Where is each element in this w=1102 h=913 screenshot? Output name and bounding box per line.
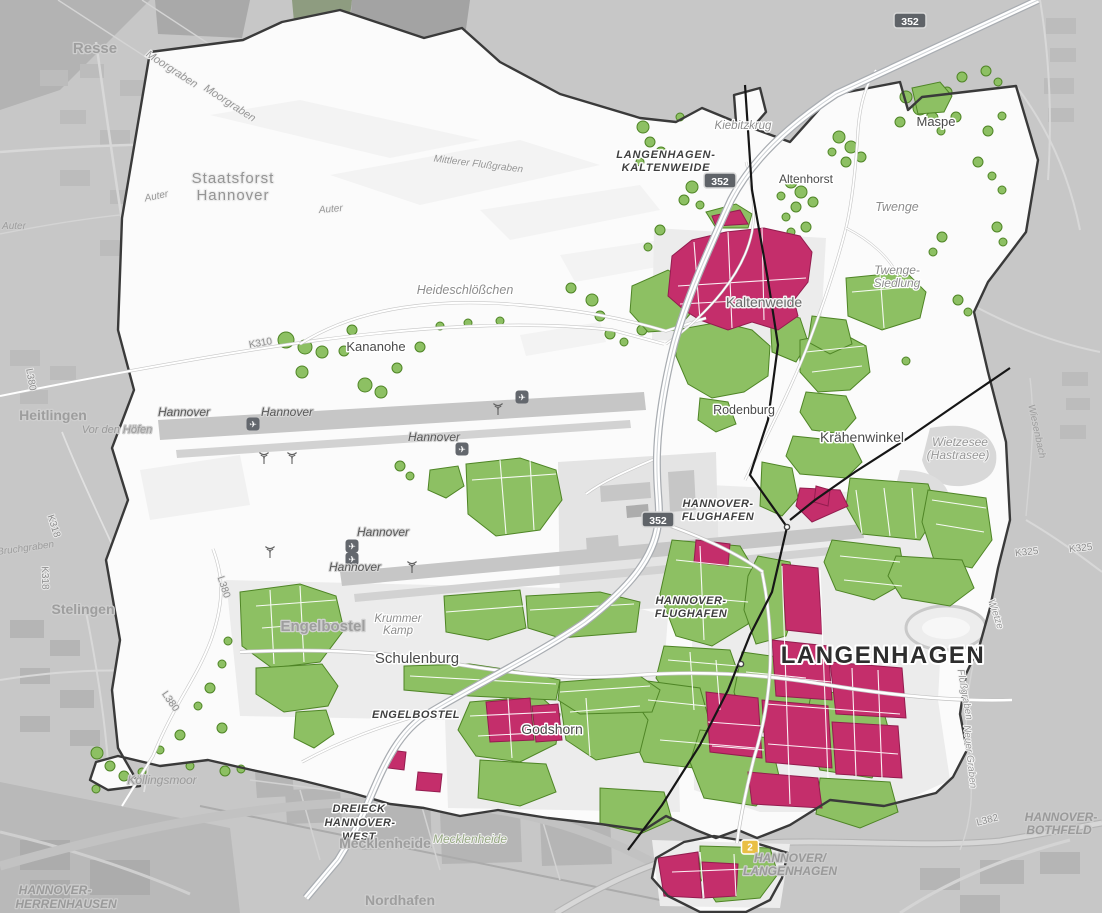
map-label-rodenburg: Rodenburg	[713, 403, 775, 417]
map-label-hannover-rwy-2: Hannover	[261, 405, 314, 419]
map-label-langenhagen-kaltenweide-1: LANGENHAGEN-	[616, 149, 715, 161]
map-label-hannover-rwy-1: Hannover	[158, 405, 211, 419]
map-label-auter-3: Auter	[1, 221, 27, 232]
map-label-kaltenweide: Kaltenweide	[726, 294, 802, 310]
map-label-krummer-kamp-2: Kamp	[383, 625, 414, 637]
map-label-krummer-kamp-1: Krummer	[374, 613, 422, 625]
map-label-wietzesee-1: Wietzesee	[932, 435, 988, 449]
map-label-nordhafen: Nordhafen	[365, 892, 435, 908]
svg-text:✈: ✈	[518, 393, 526, 403]
airplane-icon: ✈	[456, 443, 469, 456]
map-label-stelingen: Stelingen	[51, 601, 114, 617]
airplane-icon: ✈	[346, 540, 359, 553]
road-shield-shield-352-airport: 352	[642, 512, 674, 527]
svg-text:352: 352	[901, 16, 919, 28]
map-label-kananohe: Kananohe	[346, 339, 405, 354]
station-icon	[738, 661, 743, 666]
map-label-twenge-siedlung-1: Twenge-	[874, 263, 920, 277]
map-label-twenge-siedlung-2: Siedlung	[874, 276, 921, 290]
map-label-vor-den-hoefen: Vor den Höfen	[82, 424, 153, 436]
svg-text:✈: ✈	[348, 542, 356, 552]
map-label-godshorn: Godshorn	[521, 721, 582, 737]
map-label-hannover-langenhagen-2: LANGENHAGEN	[743, 864, 837, 878]
airplane-icon: ✈	[516, 391, 529, 404]
map-label-hannover-flughafen-2b: FLUGHAFEN	[655, 608, 728, 620]
map-label-hannover-rwy-5: Hannover	[329, 560, 382, 574]
map-label-maspe: Maspe	[916, 114, 955, 129]
map-label-bothfeld-1: HANNOVER-	[1025, 810, 1098, 824]
map-label-staatsforst-2: Hannover	[196, 187, 269, 204]
map-label-wietzesee-2: (Hastrasee)	[927, 448, 990, 462]
map-label-herrenhausen-1: HANNOVER-	[19, 883, 92, 897]
map-label-altenhorst: Altenhorst	[779, 172, 834, 186]
map-label-k318-b: K318	[39, 566, 51, 590]
map-label-hannover-flughafen-2a: HANNOVER-	[655, 595, 726, 607]
map-label-schulenburg: Schulenburg	[375, 650, 459, 667]
map-label-mecklenheide-2: Mecklenheide	[433, 832, 507, 846]
map-label-hannover-langenhagen-1: HANNOVER/	[754, 851, 828, 865]
map-label-hannover-rwy-4: Hannover	[357, 525, 410, 539]
road-shield-shield-352-north: 352	[894, 13, 926, 28]
map-label-auter-2: Auter	[317, 203, 343, 216]
map-label-herrenhausen-2: HERRENHAUSEN	[15, 897, 117, 911]
map-label-hannover-flughafen-1b: FLUGHAFEN	[682, 511, 755, 523]
station-icon	[784, 524, 789, 529]
svg-text:352: 352	[711, 176, 729, 188]
map-label-twenge: Twenge	[875, 200, 919, 214]
svg-text:352: 352	[649, 515, 667, 527]
map-canvas[interactable]: ✈✈✈✈✈ 3523523522 ResseStaatsforstHannove…	[0, 0, 1102, 913]
map-label-dreieck-2: HANNOVER-	[324, 817, 395, 829]
map-label-koellingsmoor: Köllingsmoor	[127, 773, 197, 787]
airplane-icon: ✈	[247, 418, 260, 431]
map-label-langenhagen-kaltenweide-2: KALTENWEIDE	[622, 162, 711, 174]
svg-text:2: 2	[747, 843, 753, 854]
map-label-kiebitzkrug: Kiebitzkrug	[715, 120, 772, 132]
map-label-hannover-flughafen-1a: HANNOVER-	[682, 498, 753, 510]
map-label-staatsforst-1: Staatsforst	[192, 170, 275, 187]
svg-text:✈: ✈	[458, 445, 466, 455]
map-label-heideschloesschen: Heideschlößchen	[417, 283, 514, 297]
map-label-bothfeld-2: BOTHFELD	[1026, 823, 1092, 837]
map-label-hannover-rwy-3: Hannover	[408, 430, 461, 444]
map-label-dreieck-1: DREIECK	[332, 803, 386, 815]
map-label-resse: Resse	[73, 40, 117, 57]
map-label-langenhagen-city: LANGENHAGEN	[781, 642, 986, 669]
map-label-engelbostel-junction: ENGELBOSTEL	[372, 709, 460, 721]
map-label-engelbostel: Engelbostel	[280, 618, 365, 635]
map-label-heitlingen: Heitlingen	[19, 407, 87, 423]
map-label-mecklenheide-1: Mecklenheide	[339, 835, 431, 851]
svg-text:✈: ✈	[249, 420, 257, 430]
road-shield-shield-352-kaltenweide: 352	[704, 173, 736, 188]
map-label-kraehenwinkel: Krähenwinkel	[820, 429, 904, 445]
